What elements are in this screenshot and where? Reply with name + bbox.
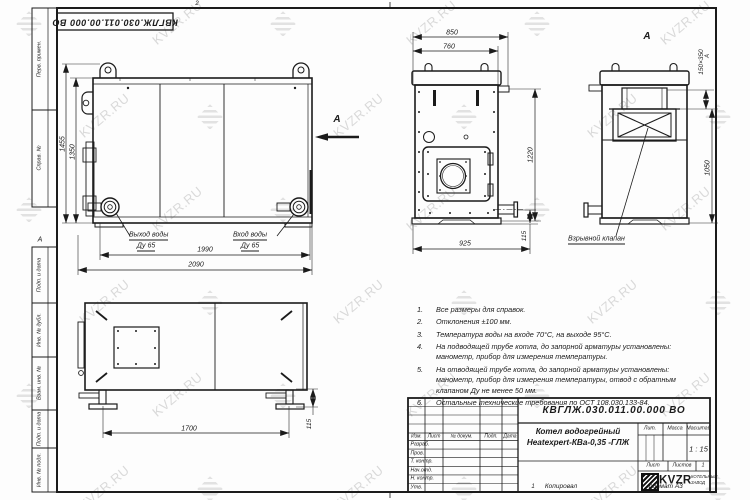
- note-number: 6.: [409, 398, 429, 408]
- brand-subtitle-2: ЗАВОД: [691, 481, 705, 485]
- margin-label-inv-podl: Инв. № подл.: [37, 453, 43, 487]
- water-inlet-label: Вход воды: [233, 232, 267, 241]
- dim-1455: 1455: [60, 136, 67, 152]
- dim-2090: 2090: [188, 262, 204, 269]
- water-inlet-dn: Ду 65: [241, 243, 259, 252]
- product-name-line1: Котел водогрейный: [536, 427, 621, 435]
- leader-lines: [116, 128, 648, 236]
- col-header-izm: Изм.: [411, 435, 422, 440]
- mass-header: Масса: [667, 426, 682, 431]
- margin-label-sprav-no: Справ. №: [37, 146, 43, 171]
- top-view-geometry: [412, 64, 523, 225]
- dim-925: 925: [459, 241, 471, 248]
- footer-copy-label: Копировал: [545, 484, 577, 491]
- dim-850: 850: [446, 30, 458, 37]
- margin-label-inv-dubl: Инв. № дубл.: [37, 313, 43, 347]
- note-text: Все размеры для справок.: [436, 305, 525, 315]
- note-text: На отводящей трубе котла, до запорной ар…: [436, 365, 676, 396]
- explosion-valve-label: Взрывной клапан: [568, 236, 625, 245]
- dim-760: 760: [443, 44, 455, 51]
- scale-header: Масштаб: [686, 426, 710, 431]
- row-tkontr: Т. контр.: [411, 459, 433, 464]
- scale-value: 1 : 15: [689, 445, 708, 453]
- water-outlet-label: Выход воды: [129, 232, 168, 241]
- note-text: Отклонения ±100 мм.: [436, 317, 512, 327]
- drawing-linework: [0, 0, 750, 500]
- margin-label-perv-primen: Перв. примен.: [37, 41, 43, 78]
- lit-header: Лит.: [644, 426, 656, 431]
- row-razrab: Разраб.: [411, 442, 430, 447]
- brand-subtitle-1: КОТЕЛЬНЫЙ: [691, 475, 717, 479]
- note-number: 4.: [409, 342, 429, 363]
- note-text: На подводящей трубе котла, до запорной а…: [436, 342, 671, 363]
- product-name-line2: Heatexpert-КВа-0,35 -ГЛЖ: [527, 439, 629, 447]
- drawing-sheet: KVZR.RUKVZR.RUKVZR.RUKVZR.RUKVZR.RUKVZR.…: [0, 0, 750, 500]
- note-item: 4.На подводящей трубе котла, до запорной…: [409, 342, 711, 363]
- row-nkontr: Н. контр.: [411, 476, 434, 481]
- view-a-title: А: [643, 32, 650, 42]
- fold-mark-right: А: [705, 54, 711, 58]
- note-item: 3.Температура воды на входе 70°С, на вых…: [409, 330, 711, 340]
- note-number: 1.: [409, 305, 429, 315]
- dim-1700: 1700: [181, 426, 197, 433]
- sheets-value: 1: [701, 463, 704, 469]
- margin-label-podp-data-2: Подп. и дата: [37, 412, 43, 446]
- margin-label-podp-data-1: Подп. и дата: [37, 258, 43, 292]
- note-number: 2.: [409, 317, 429, 327]
- col-header-docnum: № докум.: [450, 435, 472, 440]
- sheets-label: Листов: [673, 463, 692, 468]
- note-item: 1.Все размеры для справок.: [409, 305, 711, 315]
- margin-label-vzam-inv: Взам. инв. №: [37, 366, 43, 400]
- side-view-geometry: [78, 303, 307, 409]
- footer-format-label: Формат А3: [647, 484, 683, 491]
- fold-mark-bottom: 1: [531, 484, 534, 490]
- dim-1220: 1220: [528, 147, 535, 163]
- note-item: 2.Отклонения ±100 мм.: [409, 317, 711, 327]
- note-number: 5.: [409, 365, 429, 396]
- front-view-geometry: [82, 63, 312, 227]
- note-item: 5.На отводящей трубе котла, до запорной …: [409, 365, 711, 396]
- dim-115-leg: 115: [307, 419, 314, 429]
- dim-1350: 1350: [70, 144, 77, 160]
- sheet-label: Лист: [646, 463, 659, 468]
- dim-150x350: 150×350: [699, 49, 706, 75]
- view-a-arrow: [315, 133, 359, 141]
- row-nachotd: Нач.отд.: [411, 468, 433, 473]
- dim-115-pipe: 115: [522, 231, 529, 241]
- dim-1990: 1990: [197, 247, 213, 254]
- technical-notes: 1.Все размеры для справок. 2.Отклонения …: [409, 305, 711, 410]
- col-header-list: Лист: [428, 435, 441, 440]
- note-number: 3.: [409, 330, 429, 340]
- title-doc-number: КВГЛЖ.030.011.00.000 ВО: [543, 406, 686, 416]
- row-utv: Утв.: [411, 485, 423, 490]
- fold-mark-left: А: [38, 237, 43, 244]
- water-outlet-dn: Ду 65: [137, 243, 155, 252]
- col-header-podp: Подп.: [484, 435, 497, 440]
- col-header-data: Дата: [503, 435, 516, 440]
- rear-view-geometry: [584, 64, 689, 225]
- row-prov: Пров.: [411, 451, 425, 456]
- view-a-arrow-label: А: [333, 115, 340, 125]
- corner-doc-number: КВГЛЖ.030.011.00.000 ВО: [52, 17, 178, 26]
- dim-1050: 1050: [705, 160, 712, 176]
- note-text: Температура воды на входе 70°С, на выход…: [436, 330, 612, 340]
- fold-mark-top: 2: [195, 1, 198, 7]
